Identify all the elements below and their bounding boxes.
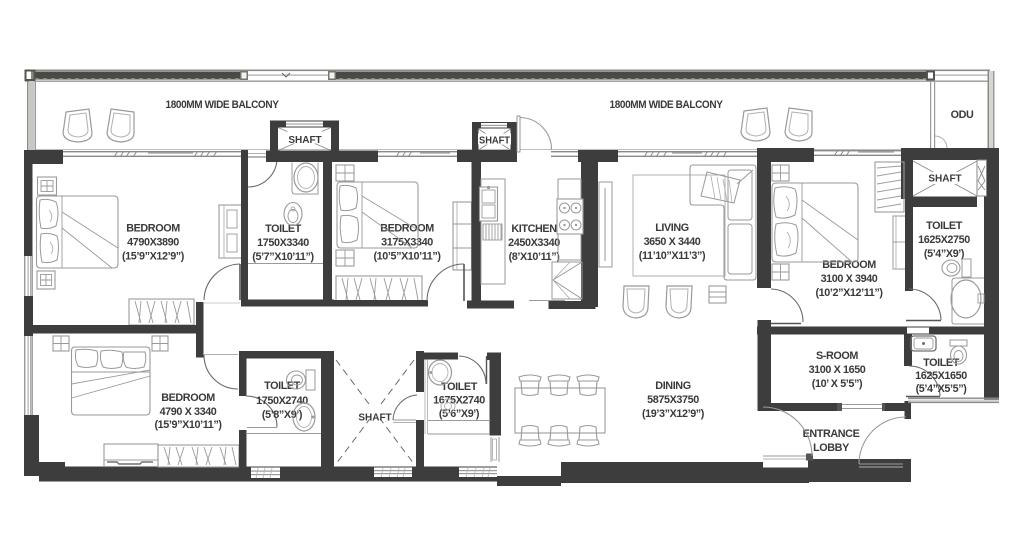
svg-text:(5’6”X9’): (5’6”X9’) <box>439 408 480 420</box>
svg-text:4790 X 3340: 4790 X 3340 <box>160 406 217 418</box>
svg-text:1750X3340: 1750X3340 <box>257 237 309 249</box>
svg-text:3175X3340: 3175X3340 <box>381 237 433 249</box>
svg-text:KITCHEN: KITCHEN <box>511 223 557 235</box>
svg-text:DINING: DINING <box>655 380 690 392</box>
svg-text:1800MM WIDE BALCONY: 1800MM WIDE BALCONY <box>610 99 724 111</box>
svg-text:4790X3890: 4790X3890 <box>127 237 179 249</box>
svg-text:SHAFT: SHAFT <box>288 135 321 146</box>
svg-text:LOBBY: LOBBY <box>813 442 850 454</box>
svg-text:(11’10”X11’3”): (11’10”X11’3”) <box>639 250 706 262</box>
svg-text:3100 X 1650: 3100 X 1650 <box>809 364 866 376</box>
svg-text:1750X2740: 1750X2740 <box>256 395 308 407</box>
svg-text:TOILET: TOILET <box>264 380 301 392</box>
svg-text:LIVING: LIVING <box>655 222 689 234</box>
svg-text:3100 X 3940: 3100 X 3940 <box>821 273 878 285</box>
svg-text:S-ROOM: S-ROOM <box>816 350 858 362</box>
svg-text:BEDROOM: BEDROOM <box>161 392 215 404</box>
svg-text:1800MM WIDE BALCONY: 1800MM WIDE BALCONY <box>166 99 280 111</box>
svg-text:1625X1650: 1625X1650 <box>915 370 967 382</box>
svg-text:TOILET: TOILET <box>926 220 963 232</box>
svg-text:(5’7”X10’11”): (5’7”X10’11”) <box>252 251 314 263</box>
svg-text:(10’2”X12’11”): (10’2”X12’11”) <box>815 287 883 299</box>
svg-text:1625X2750: 1625X2750 <box>918 234 970 246</box>
svg-text:(15’9”X10’11”): (15’9”X10’11”) <box>154 419 222 431</box>
svg-text:(10’5”X10’11”): (10’5”X10’11”) <box>373 251 441 263</box>
svg-text:SHAFT: SHAFT <box>358 413 391 424</box>
svg-text:(8’X10’11”): (8’X10’11”) <box>509 251 561 263</box>
svg-text:BEDROOM: BEDROOM <box>822 259 876 271</box>
svg-text:SHAFT: SHAFT <box>928 174 961 185</box>
svg-text:2450X3340: 2450X3340 <box>508 237 560 249</box>
svg-text:(5’4”X5’5”): (5’4”X5’5”) <box>916 383 968 395</box>
svg-text:(5’4”X9’): (5’4”X9’) <box>924 248 965 260</box>
svg-text:BEDROOM: BEDROOM <box>380 223 434 235</box>
svg-text:5875X3750: 5875X3750 <box>647 394 699 406</box>
svg-text:ENTRANCE: ENTRANCE <box>803 428 860 440</box>
svg-text:SHAFT: SHAFT <box>479 136 510 147</box>
svg-text:(15’9”X12’9”): (15’9”X12’9”) <box>122 251 185 263</box>
svg-text:ODU: ODU <box>951 109 974 121</box>
svg-text:(19’3”X12’9”): (19’3”X12’9”) <box>642 408 705 420</box>
svg-text:(10’ X 5’5”): (10’ X 5’5”) <box>812 378 863 390</box>
svg-text:3650 X 3440: 3650 X 3440 <box>644 236 701 248</box>
svg-text:BEDROOM: BEDROOM <box>126 223 180 235</box>
